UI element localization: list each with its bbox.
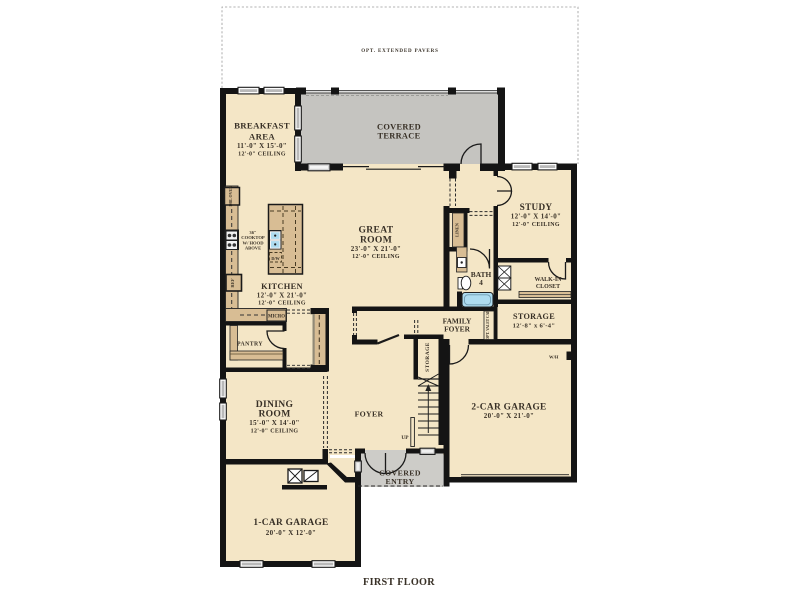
svg-text:15'-0" X 14'-0": 15'-0" X 14'-0" xyxy=(249,419,299,427)
svg-text:LINEN: LINEN xyxy=(454,222,459,237)
svg-text:TERRACE: TERRACE xyxy=(377,132,420,141)
svg-text:2-CAR GARAGE: 2-CAR GARAGE xyxy=(471,403,546,413)
svg-text:MICRO: MICRO xyxy=(268,314,285,319)
svg-text:FIRST FLOOR: FIRST FLOOR xyxy=(363,577,435,588)
svg-text:FOYER: FOYER xyxy=(444,325,471,334)
svg-text:ROOM: ROOM xyxy=(360,235,392,246)
svg-text:ABOVE: ABOVE xyxy=(245,246,261,251)
svg-text:CLOSET: CLOSET xyxy=(536,284,560,290)
svg-text:OPT. EXTENDED PAVERS: OPT. EXTENDED PAVERS xyxy=(361,49,438,54)
svg-text:D/W: D/W xyxy=(271,256,280,261)
svg-text:PANTRY: PANTRY xyxy=(237,342,263,348)
svg-text:STORAGE: STORAGE xyxy=(513,312,555,321)
svg-text:REF: REF xyxy=(230,278,235,287)
svg-text:12'-0" CEILING: 12'-0" CEILING xyxy=(258,301,306,307)
svg-text:23'-0" X 21'-0": 23'-0" X 21'-0" xyxy=(351,245,401,253)
svg-text:4: 4 xyxy=(479,278,483,287)
svg-text:20'-0" X 21'-0": 20'-0" X 21'-0" xyxy=(484,412,534,420)
svg-text:1-CAR GARAGE: 1-CAR GARAGE xyxy=(253,518,328,528)
svg-text:AREA: AREA xyxy=(249,132,275,142)
svg-text:ENTRY: ENTRY xyxy=(385,477,414,486)
svg-text:12'-0" CEILING: 12'-0" CEILING xyxy=(512,222,560,228)
svg-text:12'-0" X 14'-0": 12'-0" X 14'-0" xyxy=(511,213,561,221)
svg-text:WALK-IN: WALK-IN xyxy=(534,277,562,283)
svg-text:COVERED: COVERED xyxy=(377,123,421,132)
svg-text:FOYER: FOYER xyxy=(355,410,384,419)
svg-text:BREAKFAST: BREAKFAST xyxy=(234,121,290,131)
svg-text:ROOM: ROOM xyxy=(258,409,290,420)
svg-text:OPT. VALET CAB: OPT. VALET CAB xyxy=(486,310,490,340)
svg-text:STORAGE: STORAGE xyxy=(425,342,431,372)
svg-text:UP: UP xyxy=(401,435,409,441)
svg-text:12'-0" CEILING: 12'-0" CEILING xyxy=(238,152,286,158)
svg-text:20'-0" X 12'-0": 20'-0" X 12'-0" xyxy=(266,529,316,537)
svg-text:12'-8" x 6'-4": 12'-8" x 6'-4" xyxy=(513,323,556,330)
svg-text:STUDY: STUDY xyxy=(520,202,553,212)
svg-text:11'-0" X 15'-0": 11'-0" X 15'-0" xyxy=(237,142,287,150)
svg-text:12'-0" CEILING: 12'-0" CEILING xyxy=(251,429,299,435)
svg-text:W/H: W/H xyxy=(549,355,559,360)
svg-text:KITCHEN: KITCHEN xyxy=(261,282,303,291)
svg-text:12'-0" X 21'-0": 12'-0" X 21'-0" xyxy=(257,292,307,300)
svg-text:12'-0" CEILING: 12'-0" CEILING xyxy=(352,254,400,260)
svg-text:DBL OVEN: DBL OVEN xyxy=(228,186,233,207)
